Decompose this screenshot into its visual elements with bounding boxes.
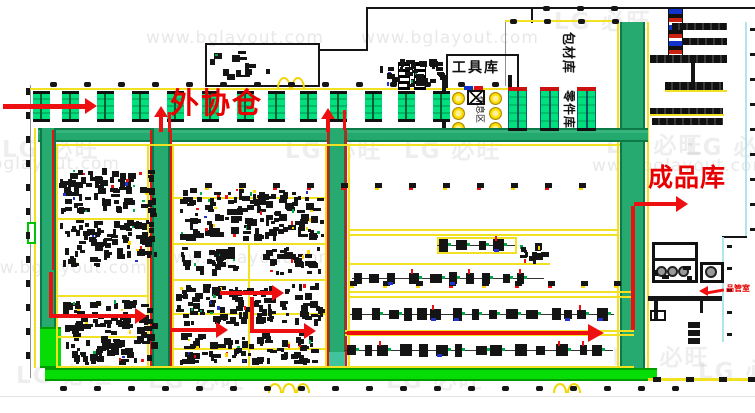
machine-block — [220, 307, 225, 313]
pillar-mark-accent — [409, 188, 413, 190]
machine-block — [86, 183, 92, 187]
machine-block — [94, 193, 98, 200]
machine-block — [301, 262, 304, 268]
machine-accent — [194, 355, 196, 358]
machine-block — [190, 218, 198, 224]
machine-block — [190, 288, 196, 292]
machine-block — [102, 343, 109, 350]
machine-block — [133, 300, 137, 305]
machine-block — [249, 344, 254, 349]
machine-block — [89, 232, 96, 235]
machine-block — [80, 250, 85, 253]
pillar-mark-accent — [581, 286, 585, 288]
machine-block — [248, 353, 251, 356]
machine-block — [419, 344, 428, 357]
machine-block — [298, 196, 301, 200]
machine-block — [100, 180, 108, 186]
machine-block — [77, 208, 84, 213]
machine-accent — [244, 306, 246, 310]
machine-accent — [388, 282, 393, 285]
machine-block — [299, 284, 302, 291]
machine-block — [154, 252, 157, 257]
column-dot — [400, 386, 407, 391]
machine-block — [90, 175, 93, 181]
machine-block — [79, 194, 82, 201]
machine-block — [107, 350, 115, 356]
machine-block — [181, 333, 188, 340]
machine-accent — [317, 231, 320, 234]
storage-rack — [665, 82, 723, 90]
machine-accent — [519, 269, 521, 274]
machine-block — [65, 325, 70, 332]
finished-goods-arrow-shaft — [634, 202, 678, 206]
machine-block — [299, 297, 303, 300]
machine-block — [97, 356, 104, 362]
machine-block — [389, 310, 399, 319]
machine-accent — [309, 340, 311, 344]
machine-block — [227, 209, 235, 215]
machine-block — [308, 261, 316, 267]
machine-accent — [288, 342, 290, 344]
machine-block — [264, 333, 268, 336]
machine-block — [321, 234, 324, 237]
left-wall-dash — [26, 184, 30, 191]
machine-block — [106, 306, 111, 311]
machine-accent — [462, 348, 465, 351]
machine-block — [301, 346, 309, 349]
column-dot — [570, 386, 577, 391]
route4-head — [304, 323, 316, 339]
machine-block — [317, 247, 320, 251]
machine-accent — [502, 348, 505, 351]
left-wall-dash — [26, 304, 30, 311]
route4-horizontal — [250, 329, 306, 333]
machine-block — [91, 239, 97, 246]
left-wall-dash — [26, 112, 30, 119]
machine-block — [313, 208, 321, 211]
label-parts-warehouse: 零件库 — [563, 90, 575, 129]
machine-unit — [365, 91, 382, 122]
column-dot — [322, 82, 329, 87]
column-dot — [84, 82, 91, 87]
mainline-arrow-head — [588, 324, 604, 342]
machine-accent — [114, 300, 116, 304]
machine-accent — [85, 210, 87, 212]
machine-block — [76, 301, 80, 307]
outsourcing-up-arrow-head — [154, 106, 168, 117]
inbound-arrow-shaft — [3, 104, 85, 109]
machine-block — [144, 326, 152, 331]
machine-block — [247, 224, 251, 230]
machine-block — [63, 260, 66, 267]
pillar-mark-accent — [341, 188, 345, 190]
machine-accent — [379, 341, 381, 346]
machine-accent — [504, 243, 507, 246]
column-dot — [230, 386, 237, 391]
machine-block — [365, 345, 372, 356]
machine-block — [128, 173, 136, 179]
machine-block — [317, 198, 324, 201]
machine-block — [117, 207, 122, 213]
parts-machine-unit — [508, 87, 527, 131]
machine-block — [472, 309, 479, 320]
center-up-arrow-shaft — [326, 119, 330, 132]
machine-accent — [467, 243, 470, 246]
machine-block — [211, 300, 216, 303]
machine-block — [72, 192, 79, 196]
machine-block — [294, 197, 298, 201]
machine-block — [210, 202, 216, 206]
machine-accent — [139, 172, 142, 175]
machine-block — [90, 257, 98, 262]
machine-block — [292, 284, 295, 288]
column-dot — [458, 82, 465, 87]
machine-block — [147, 334, 155, 341]
storage-rack — [652, 118, 723, 125]
machine-block — [220, 252, 228, 259]
machine-accent — [538, 246, 540, 250]
machine-block — [115, 194, 120, 197]
machine-block — [352, 308, 362, 320]
machine-block — [533, 259, 536, 264]
wall-tick — [727, 245, 732, 248]
machine-block — [142, 341, 150, 344]
wall-tick — [727, 267, 732, 270]
machine-block — [392, 77, 400, 82]
machine-block — [429, 59, 437, 66]
machinery-cluster — [437, 238, 515, 253]
column-dot — [577, 6, 584, 11]
machine-block — [267, 358, 270, 364]
column-dot — [543, 6, 550, 11]
machine-block — [296, 337, 301, 343]
machine-block — [592, 345, 602, 356]
machine-block — [228, 192, 231, 195]
pillar-mark-accent — [579, 188, 583, 190]
machine-block — [67, 234, 70, 237]
machine-accent — [448, 243, 451, 246]
machine-block — [102, 198, 105, 201]
machine-accent — [141, 359, 144, 362]
machine-block — [372, 308, 380, 320]
machine-accent — [524, 276, 527, 279]
left-wall-dash — [26, 280, 30, 287]
machine-block — [286, 313, 289, 316]
machine-block — [110, 177, 114, 183]
wall-tick — [750, 53, 755, 56]
wall-tick — [750, 203, 755, 206]
machine-accent — [479, 312, 482, 315]
machine-accent — [135, 260, 138, 262]
left-wall-dash — [26, 160, 30, 167]
machine-accent — [260, 211, 262, 215]
machine-accent — [558, 341, 560, 346]
label-tool-warehouse: 工具库 — [452, 61, 500, 75]
machine-block — [655, 270, 658, 276]
left-wall-dash — [26, 136, 30, 143]
route3-horizontal — [172, 328, 218, 332]
label-packaging-warehouse: 包材库 — [561, 32, 574, 74]
machine-block — [202, 352, 208, 355]
machine-block — [310, 301, 318, 308]
machinery-cluster — [352, 267, 544, 290]
machine-block — [147, 308, 153, 313]
machine-block — [65, 207, 72, 211]
machine-block — [212, 269, 217, 276]
left-wall-dash — [26, 256, 30, 263]
machine-accent — [411, 80, 413, 83]
machine-block — [190, 224, 193, 230]
column-dot — [298, 386, 305, 391]
machine-block — [280, 272, 284, 275]
machine-block — [180, 209, 183, 213]
machinery-cluster — [517, 243, 551, 267]
machine-accent — [250, 192, 252, 196]
machine-accent — [73, 197, 75, 200]
machine-accent — [302, 255, 304, 259]
machine-accent — [497, 312, 500, 315]
machine-block — [203, 288, 210, 293]
quality-arrow-head — [699, 286, 708, 296]
machine-block — [234, 322, 239, 326]
machine-block — [259, 305, 263, 312]
machinery-cluster — [345, 336, 613, 365]
column-dot — [162, 386, 169, 391]
machine-accent — [121, 309, 123, 311]
machine-block — [280, 301, 286, 307]
machine-block — [277, 348, 283, 351]
left-wall-dash — [26, 232, 30, 239]
machine-block — [288, 269, 292, 273]
machine-block — [215, 214, 220, 221]
machine-block — [284, 352, 288, 359]
machine-block — [285, 203, 292, 209]
machine-block — [182, 290, 187, 294]
pillar-mark-accent — [545, 188, 549, 190]
machine-block — [183, 190, 188, 196]
column-dot — [492, 82, 499, 87]
machine-block — [85, 223, 89, 227]
machine-block — [94, 221, 98, 228]
machine-block — [112, 239, 118, 245]
machine-block — [300, 221, 308, 224]
machine-block — [242, 337, 245, 340]
machine-block — [234, 197, 237, 203]
machine-block — [439, 239, 448, 252]
machine-accent — [568, 348, 571, 351]
machine-unit — [433, 91, 450, 122]
finished-goods-arrow-head — [676, 196, 688, 212]
machine-block — [506, 309, 518, 319]
machine-accent — [128, 241, 131, 245]
machine-block — [206, 297, 210, 300]
machine-accent — [579, 305, 581, 310]
machine-block — [437, 62, 443, 66]
machine-block — [120, 225, 128, 230]
parts-machine-unit — [540, 87, 559, 131]
column-dot — [672, 386, 679, 391]
column-dot — [264, 386, 271, 391]
machine-block — [148, 200, 152, 207]
column-dot — [356, 82, 363, 87]
machine-block — [71, 264, 77, 267]
machine-accent — [419, 276, 422, 279]
finished-goods-vertical — [631, 206, 635, 330]
route2-head — [272, 285, 284, 301]
machine-block — [75, 323, 81, 329]
label-rest-area: 休息区 — [474, 96, 483, 123]
machine-block — [245, 69, 252, 75]
machine-accent — [204, 216, 207, 218]
machine-block — [440, 77, 445, 80]
machine-block — [233, 266, 239, 269]
column-dot — [638, 386, 645, 391]
wall-tick — [750, 28, 755, 31]
machine-block — [298, 231, 301, 237]
route1-vertical — [49, 272, 53, 318]
pillar-mark-accent — [443, 188, 447, 190]
center-up-arrow-head — [321, 108, 335, 119]
machine-block — [305, 293, 312, 300]
machinery-cluster — [350, 300, 614, 329]
route4-vertical — [250, 297, 254, 331]
machine-block — [75, 251, 78, 257]
machine-block — [257, 313, 262, 318]
machine-accent — [205, 228, 208, 231]
machine-block — [311, 349, 319, 353]
machine-block — [238, 51, 246, 54]
machine-block — [236, 348, 242, 353]
machine-accent — [510, 276, 513, 279]
machine-block — [71, 344, 75, 348]
factory-layout-plan: www.bglayout.comwww.bglayout.comwww.bgla… — [0, 0, 755, 413]
column-dot — [60, 386, 67, 391]
machine-block — [305, 197, 309, 201]
machine-block — [95, 183, 99, 188]
machine-block — [189, 353, 194, 359]
machine-accent — [136, 249, 139, 251]
machine-accent — [225, 353, 228, 357]
pillar-mark-accent — [614, 286, 618, 288]
machine-block — [214, 354, 221, 358]
machine-accent — [586, 312, 589, 315]
machine-accent — [210, 312, 213, 314]
machine-block — [113, 339, 120, 342]
machine-block — [268, 304, 271, 311]
machine-block — [232, 55, 240, 62]
machine-accent — [188, 339, 190, 341]
machine-block — [260, 218, 264, 222]
machine-accent — [388, 348, 391, 351]
machine-block — [407, 84, 415, 87]
machine-block — [149, 236, 155, 242]
machine-block — [436, 67, 443, 71]
machine-block — [110, 188, 118, 192]
machine-block — [662, 275, 669, 279]
machine-block — [240, 297, 243, 301]
route3-head — [216, 322, 228, 338]
wall-tick — [750, 78, 755, 81]
machine-block — [85, 197, 91, 200]
machine-block — [310, 286, 317, 290]
machine-accent — [292, 227, 294, 229]
machine-block — [79, 241, 86, 244]
machine-block — [296, 264, 301, 267]
column-dot — [196, 386, 203, 391]
machine-block — [388, 67, 394, 71]
machine-block — [230, 309, 237, 314]
machine-block — [536, 346, 545, 355]
machine-block — [74, 182, 81, 188]
machine-accent — [582, 341, 584, 346]
machine-block — [96, 349, 103, 353]
machine-accent — [608, 312, 611, 315]
machine-block — [74, 338, 79, 341]
machine-block — [277, 254, 285, 259]
machine-block — [274, 218, 279, 222]
machine-block — [236, 216, 242, 221]
machine-block — [266, 201, 273, 208]
machine-block — [142, 239, 149, 245]
machine-block — [455, 344, 462, 357]
machine-block — [111, 331, 117, 335]
machine-block — [197, 197, 202, 202]
machine-block — [128, 232, 132, 236]
machine-accent — [307, 250, 310, 254]
machine-accent — [196, 346, 199, 350]
machine-block — [401, 61, 404, 67]
machine-accent — [598, 318, 603, 321]
machine-block — [194, 253, 201, 258]
machine-block — [198, 335, 203, 340]
machine-block — [119, 361, 126, 365]
machine-accent — [490, 276, 493, 279]
left-wall-dash — [26, 328, 30, 335]
outsourcing-up-arrow-shaft — [159, 117, 163, 132]
machine-block — [212, 262, 216, 266]
label-outsourcing-warehouse: 外协仓 — [170, 89, 263, 118]
machine-block — [61, 208, 64, 214]
machine-unit — [268, 91, 285, 122]
machine-block — [283, 192, 288, 199]
machine-block — [273, 235, 276, 241]
machine-block — [305, 316, 312, 320]
machine-block — [466, 273, 474, 284]
boundary-dash — [653, 377, 661, 382]
route1-head — [135, 308, 147, 324]
machine-block — [193, 231, 200, 237]
machine-unit — [300, 91, 317, 122]
machine-block — [532, 252, 537, 258]
machine-block — [141, 204, 148, 208]
machine-block — [65, 248, 69, 255]
machine-block — [149, 176, 154, 182]
machine-block — [74, 355, 80, 362]
machine-block — [252, 358, 259, 362]
machine-accent — [399, 312, 402, 315]
machine-block — [347, 345, 356, 355]
conveyor-line — [352, 278, 544, 279]
machine-block — [242, 341, 248, 348]
machine-block — [517, 273, 524, 284]
machinery-cluster — [58, 220, 160, 268]
machine-block — [282, 307, 287, 310]
machine-accent — [468, 269, 470, 274]
machine-block — [71, 229, 77, 232]
machine-unit — [132, 91, 149, 122]
machine-block — [242, 196, 250, 201]
machine-block — [76, 220, 84, 223]
